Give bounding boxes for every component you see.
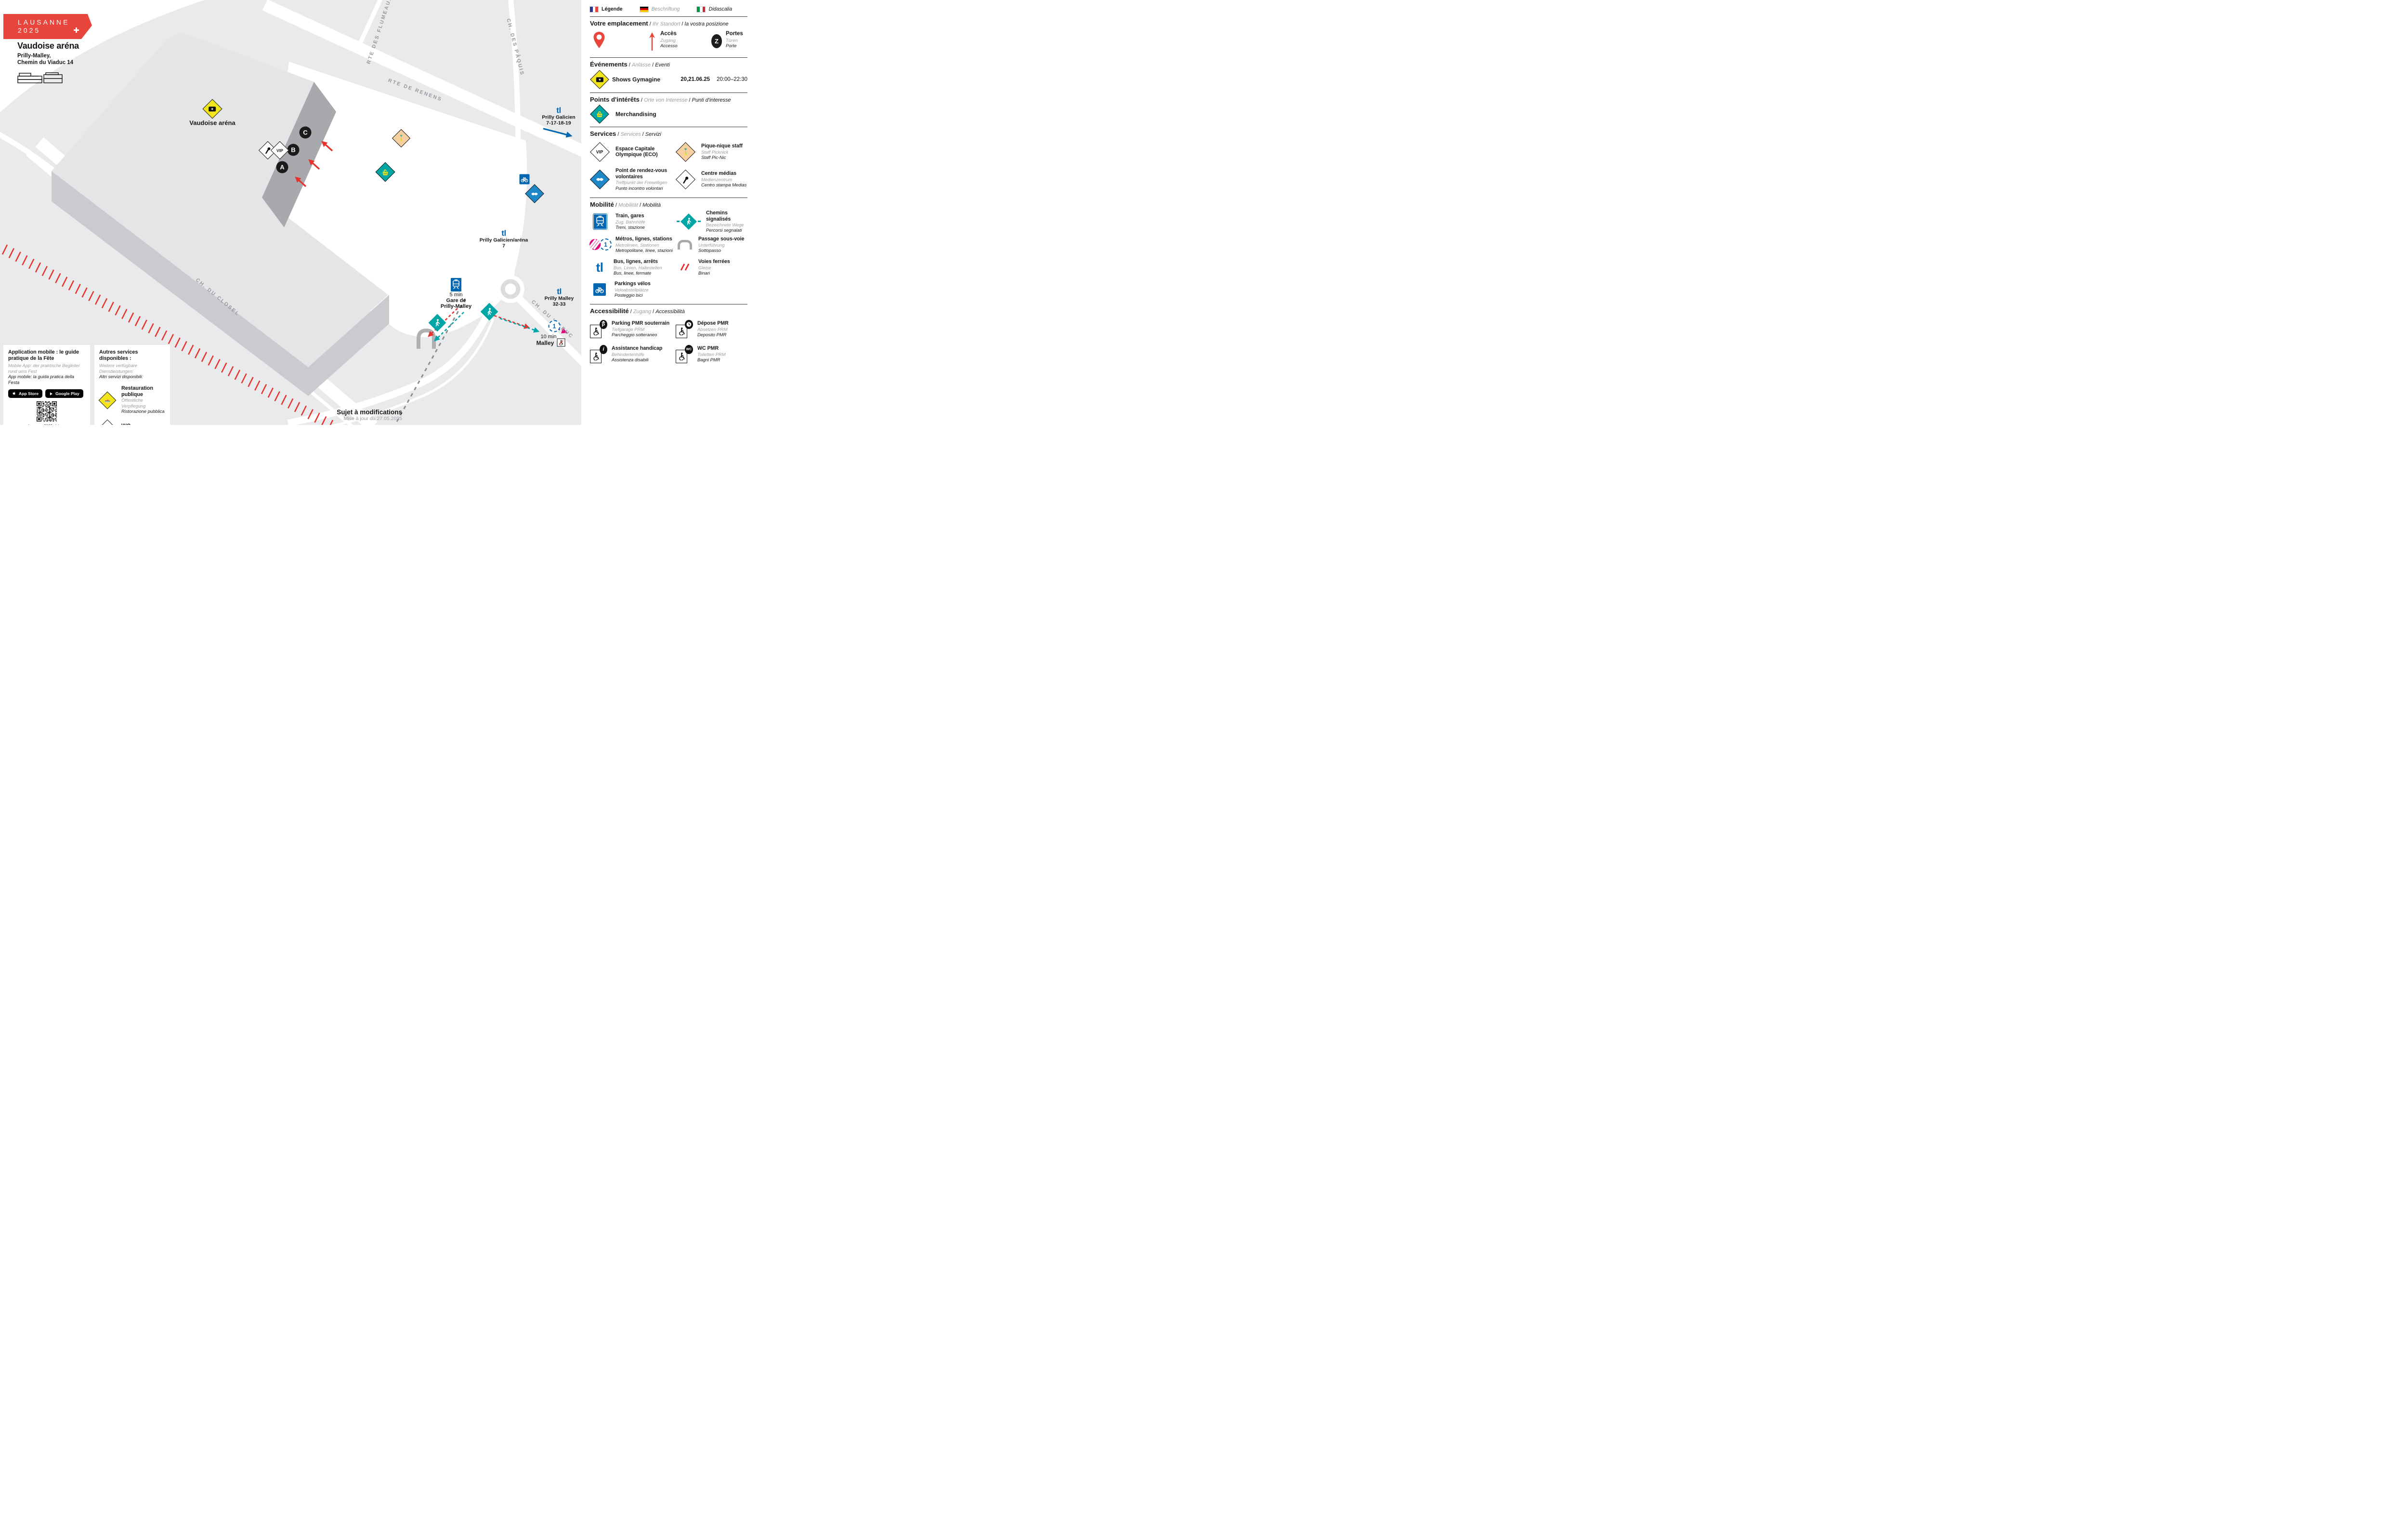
- stop-name: Prilly Malley: [545, 295, 574, 301]
- restauration-label-de: Öffentliche Verpflegung: [121, 397, 165, 409]
- access-arrow-icon: [649, 32, 655, 51]
- venue-address-2: Chemin du Viaduc 14: [17, 60, 79, 66]
- google-play-button[interactable]: Google Play: [45, 389, 83, 398]
- divider: [590, 57, 747, 58]
- stop-prilly-galicien-arena: tl Prilly Galicien/aréna 7: [480, 229, 528, 249]
- poi-row: Merchandising: [590, 105, 747, 123]
- venue-map: LAUSANNE 2025 Vaudoise aréna Prilly-Mall…: [0, 0, 581, 425]
- tl-logo: tl: [480, 229, 528, 237]
- bike-parking-icon: [593, 283, 606, 296]
- tl-logo: tl: [542, 106, 575, 114]
- legend-item-pmr-wc: WC WC PMR Toiletten PRM Bagni PMR: [676, 342, 747, 367]
- arena-label: Vaudoise aréna: [189, 119, 235, 127]
- tl-logo: tl: [545, 287, 574, 295]
- gate-badge-icon: Z: [711, 34, 722, 48]
- gare-name-1: Gare de: [446, 298, 466, 303]
- location-row: Accès Zugang Accesso Z Portes Türen Port…: [590, 29, 747, 54]
- qr-code: [37, 401, 57, 422]
- other-services-card: Autres services disponibles : Weitere ve…: [94, 345, 170, 425]
- bike-parking-icon-map: [520, 174, 530, 185]
- google-play-label: Google Play: [55, 391, 79, 396]
- app-card-title-de: Mobile App: der praktische Begleiter run…: [8, 363, 85, 374]
- app-card-title-it: App mobile: la guida pratica della Festa: [8, 374, 85, 385]
- not-accessible-icon: [557, 339, 565, 347]
- legend-item-bus: tl Bus, lignes, arrêts Bus, Linien, Halt…: [590, 256, 675, 278]
- portes-fr: Portes: [726, 31, 743, 38]
- stop-lines: 7-17-18-19: [542, 120, 575, 126]
- flag-germany-icon: [640, 7, 648, 12]
- legend-item-media: Centre médias Medienzentrum Centro stamp…: [676, 164, 747, 194]
- section-accessibility: AccessibilitéZugangAccessibilità: [590, 307, 747, 315]
- portes-it: Porte: [726, 43, 743, 48]
- event-row: ★ Shows Gymagine 20,21.06.25 20:00–22:30: [590, 70, 747, 89]
- stop-prilly-galicien: tl Prilly Galicien 7-17-18-19: [542, 106, 575, 126]
- legend-item-paths: Chemins signalisés Bezeichnete Wege Perc…: [676, 210, 747, 233]
- door-C: C: [300, 127, 312, 139]
- logo-line1: LAUSANNE: [18, 18, 69, 26]
- wc-label: WC: [121, 423, 131, 425]
- divider: [590, 16, 747, 17]
- stop-lines: 7: [480, 243, 528, 249]
- restauration-icon: [99, 392, 117, 409]
- divider: [590, 127, 747, 127]
- swiss-cross-icon: [74, 27, 79, 33]
- section-events: ÉvénementsAnlässeEventi: [590, 61, 747, 68]
- gate-letter: Z: [715, 38, 719, 45]
- stop-lines: 32-33: [545, 302, 574, 307]
- legend-item-pmr-parking: P Parking PMR souterrain Tiefgarage PRM …: [590, 317, 675, 342]
- lausanne-2025-banner: LAUSANNE 2025: [3, 14, 92, 39]
- section-services: ServicesServicesServizi: [590, 130, 747, 137]
- event-name: Shows Gymagine: [612, 76, 660, 83]
- divider: [590, 304, 747, 304]
- legend-item-metro: 1 Métros, lignes, stations Metrolinien, …: [590, 233, 675, 256]
- app-store-label: App Store: [19, 391, 39, 396]
- map-disclaimer: Sujet à modifications: [337, 409, 402, 416]
- app-store-button[interactable]: App Store: [8, 389, 42, 398]
- stop-name: Prilly Galicien/aréna: [480, 237, 528, 243]
- divider: [590, 198, 747, 198]
- pmr-parking-icon: P: [590, 320, 607, 338]
- legend-item-train: Train, gares Zug, Bahnhöfe Treni, stazio…: [590, 210, 675, 233]
- legend-item-underpass: Passage sous-voie Unterführung Sottopass…: [676, 233, 747, 256]
- acces-it: Accesso: [660, 43, 677, 48]
- staff-picnic-icon: [676, 142, 695, 161]
- other-card-title-it: Altri servizi disponibili:: [99, 374, 165, 380]
- public-restauration-row: Restauration publique Öffentliche Verpfl…: [99, 385, 165, 414]
- pmr-wc-icon: WC: [676, 345, 693, 363]
- event-dates: 20,21.06.25: [681, 77, 710, 82]
- page: LAUSANNE 2025 Vaudoise aréna Prilly-Mall…: [0, 0, 755, 425]
- other-card-title: Autres services disponibles :: [99, 349, 165, 362]
- acces-de: Zugang: [660, 38, 677, 43]
- train-icon: [593, 214, 607, 229]
- logo-line2: 2025: [18, 26, 69, 35]
- legend-item-eco: VIP Espace Capitale Olympique (ECO): [590, 139, 675, 164]
- section-mobility: MobilitéMobilitätMobilità: [590, 201, 747, 208]
- event-logo: LAUSANNE 2025: [18, 18, 69, 35]
- metro-icon: 1: [590, 238, 611, 251]
- metro-time: 10 min: [540, 334, 556, 340]
- arena-footprint-icon: [17, 70, 64, 85]
- legend-label-fr: Légende: [602, 6, 623, 12]
- metro-line-number: 1: [553, 323, 556, 330]
- gare-name-2: Prilly-Malley: [441, 303, 471, 309]
- other-card-title-de: Weitere verfügbare Dienstleistungen:: [99, 363, 165, 374]
- tl-bus-icon: tl: [590, 261, 609, 274]
- gare-time: 5 min: [450, 292, 463, 298]
- app-url: lausanne2025.ch/app: [8, 424, 85, 425]
- event-time: 20:00–22:30: [717, 77, 747, 82]
- legend-language-row: Légende Beschriftung Didascalia: [590, 6, 747, 12]
- legend-item-rails: Voies ferrées Gleise Binari: [676, 256, 747, 278]
- legend-item-bike: Parkings vélos Veloabstellplätze Postegg…: [590, 278, 675, 301]
- app-card-title: Application mobile : le guide pratique d…: [8, 349, 85, 362]
- acces-fr: Accès: [660, 31, 677, 38]
- map-updated: Mise à jour du 27.05.2025: [337, 416, 402, 422]
- legend-sidebar: Légende Beschriftung Didascalia Votre em…: [581, 0, 755, 425]
- venue-address-1: Prilly-Malley,: [17, 53, 79, 60]
- media-icon: [676, 169, 695, 189]
- vip-label: VIP: [276, 148, 283, 153]
- flag-italy-icon: [697, 7, 705, 12]
- assistance-icon: i: [590, 345, 607, 363]
- roundabout: [503, 281, 518, 297]
- stop-prilly-malley: tl Prilly Malley 32-33: [545, 287, 574, 307]
- wc-row: WC: [99, 419, 165, 425]
- play-icon: [49, 392, 53, 396]
- pmr-dropoff-icon: [676, 320, 693, 338]
- stop-name: Prilly Galicien: [542, 114, 575, 120]
- apple-icon: [12, 391, 17, 396]
- wc-icon: [99, 420, 117, 425]
- venue-title: Vaudoise aréna: [17, 41, 79, 51]
- location-pin-icon: [593, 31, 605, 49]
- divider: [590, 92, 747, 93]
- legend-label-it: Didascalia: [708, 6, 732, 12]
- underpass-icon: [676, 240, 694, 250]
- venue-title-block: Vaudoise aréna Prilly-Malley, Chemin du …: [17, 41, 79, 66]
- legend-item-volunteers: Point de rendez-vous volontaires Treffpu…: [590, 164, 675, 194]
- legend-label-de: Beschriftung: [652, 6, 680, 12]
- poi-name: Merchandising: [615, 111, 656, 118]
- door-A: A: [276, 161, 288, 173]
- vip-icon: VIP: [590, 142, 610, 161]
- metro-name: Malley: [537, 340, 554, 346]
- section-location: Votre emplacementIhr Standortla vostra p…: [590, 20, 747, 27]
- restauration-label-it: Ristorazione pubblica: [121, 409, 165, 414]
- flag-france-icon: [590, 7, 598, 12]
- legend-item-picnic: Pique-nique staff Staff Picknick Staff P…: [676, 139, 747, 164]
- restauration-label: Restauration publique: [121, 385, 165, 397]
- volunteers-icon: [590, 169, 610, 189]
- legend-item-pmr-depose: Dépose PMR Absetzen PRM Deposito PMR: [676, 317, 747, 342]
- train-station-icon-map: [450, 277, 462, 292]
- section-poi: Points d'intérêtsOrte von InteressePunti…: [590, 96, 747, 103]
- door-B: B: [288, 144, 300, 156]
- legend-item-pmr-assist: i Assistance handicap Behindertenhilfe A…: [590, 342, 675, 367]
- rails-icon: [676, 264, 694, 271]
- metro-1-icon-map: 1: [549, 320, 561, 332]
- shows-icon: ★: [590, 70, 609, 89]
- portes-de: Türen: [726, 38, 743, 43]
- mobile-app-card: Application mobile : le guide pratique d…: [3, 345, 90, 425]
- signed-path-icon: [677, 216, 701, 227]
- merchandising-icon: [590, 105, 609, 124]
